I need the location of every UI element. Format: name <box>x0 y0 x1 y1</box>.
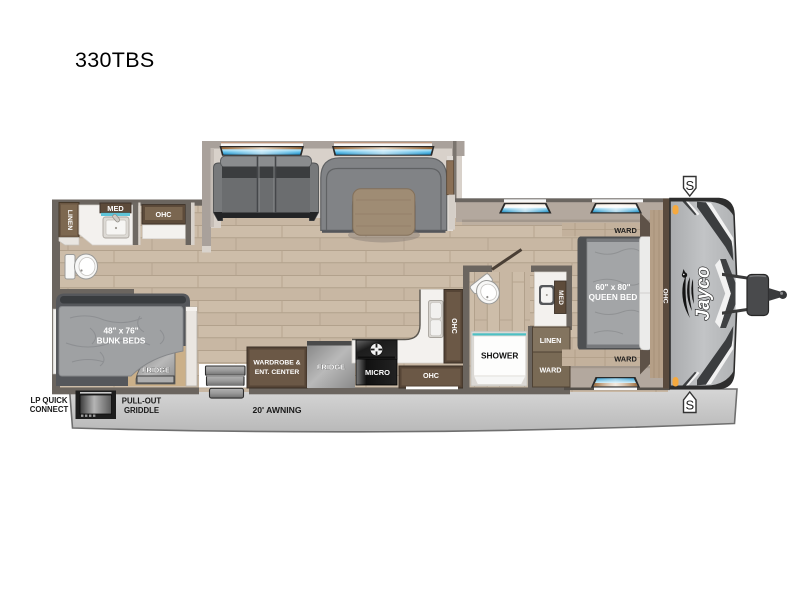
svg-text:20' AWNING: 20' AWNING <box>253 405 302 415</box>
svg-text:QUEEN BED: QUEEN BED <box>589 293 638 302</box>
svg-text:PULL-OUT: PULL-OUT <box>122 397 162 406</box>
svg-text:WARD: WARD <box>540 366 562 375</box>
svg-text:ENT. CENTER: ENT. CENTER <box>255 369 300 376</box>
svg-text:MED: MED <box>107 204 124 213</box>
svg-text:MICRO: MICRO <box>365 368 390 377</box>
svg-text:LINEN: LINEN <box>540 336 562 345</box>
svg-text:S: S <box>685 398 694 413</box>
svg-text:OHC: OHC <box>156 210 172 219</box>
svg-text:48" x 76": 48" x 76" <box>103 327 138 336</box>
svg-text:OHC: OHC <box>662 288 669 303</box>
svg-text:MED: MED <box>557 290 564 305</box>
svg-text:BUNK BEDS: BUNK BEDS <box>97 337 146 346</box>
svg-text:FRIDGE: FRIDGE <box>317 363 345 372</box>
svg-text:60" x 80": 60" x 80" <box>595 283 630 292</box>
svg-text:WARD: WARD <box>614 226 637 235</box>
svg-text:SHOWER: SHOWER <box>481 350 518 360</box>
svg-text:330TBS: 330TBS <box>75 48 155 72</box>
svg-text:FRIDGE: FRIDGE <box>142 366 170 375</box>
svg-text:OHC: OHC <box>450 318 457 334</box>
svg-text:LP QUICK: LP QUICK <box>30 396 67 405</box>
svg-text:GRIDDLE: GRIDDLE <box>124 406 159 415</box>
svg-text:S: S <box>685 178 694 193</box>
svg-text:Jayco: Jayco <box>693 267 714 321</box>
svg-text:OHC: OHC <box>423 371 439 380</box>
svg-text:LINEN: LINEN <box>66 210 73 230</box>
svg-text:WARDROBE &: WARDROBE & <box>253 360 300 367</box>
svg-text:WARD: WARD <box>614 355 637 364</box>
svg-text:CONNECT: CONNECT <box>30 405 69 414</box>
